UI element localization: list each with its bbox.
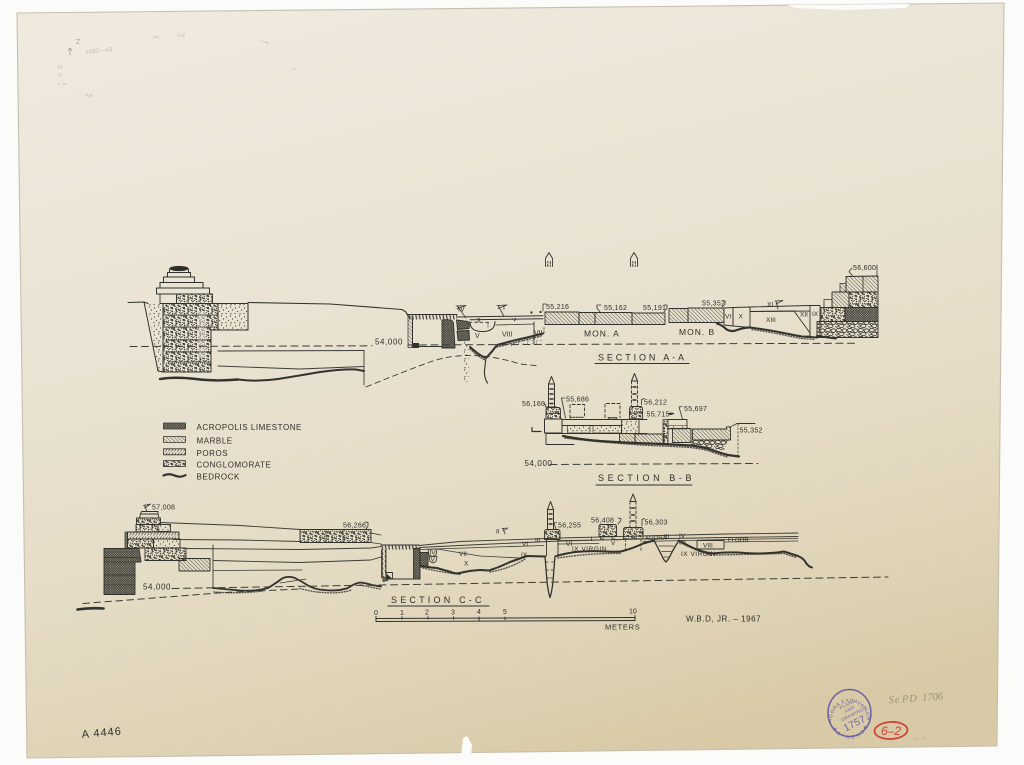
svg-text:5: 5 [503,609,507,616]
svg-text:MARBLE: MARBLE [197,437,233,446]
svg-text:55,216: 55,216 [546,304,569,311]
svg-text:55,715: 55,715 [647,412,670,419]
svg-text:II: II [496,529,500,536]
svg-text:I: I [591,536,593,543]
svg-text:56,303: 56,303 [645,520,668,527]
svg-text:X: X [464,561,469,568]
svg-text:57,008: 57,008 [152,505,175,512]
svg-text:≈ »•: ≈ »• [58,82,67,88]
svg-text:BEDROCK: BEDROCK [197,473,241,482]
svg-text:MON. A: MON. A [584,329,620,339]
svg-text:55,686: 55,686 [566,397,589,404]
svg-text:Z: Z [76,39,81,46]
svg-text:56,255: 56,255 [558,523,581,530]
svg-text:VIII: VIII [502,332,513,339]
svg-text:FLOOR: FLOOR [728,538,749,544]
svg-text:III: III [664,534,670,541]
svg-text:W.B.D, JR. – 1967: W.B.D, JR. – 1967 [686,615,761,624]
svg-text:1: 1 [400,610,404,617]
svg-text:2: 2 [425,610,429,617]
svg-text:56,266: 56,266 [343,523,366,530]
svg-text:56,212: 56,212 [644,400,667,407]
svg-text:IV: IV [430,550,437,557]
svg-text:54,000: 54,000 [525,459,553,468]
svg-text:54,000: 54,000 [375,338,403,347]
svg-text:SECTION B-B: SECTION B-B [598,473,695,483]
svg-text:JL: JL [476,319,483,325]
svg-text:V: V [611,540,616,547]
svg-text:10: 10 [629,609,637,616]
svg-text:ACROPOLIS LIMESTONE: ACROPOLIS LIMESTONE [197,423,302,432]
svg-text:1•2: 1•2 [177,33,185,39]
svg-text:VI: VI [57,65,63,71]
svg-text:0: 0 [374,610,378,617]
svg-text:3: 3 [451,609,455,616]
svg-text:XII: XII [800,312,808,319]
svg-text:POROS: POROS [197,449,229,458]
svg-text:54,000: 54,000 [143,583,171,592]
svg-text:METERS: METERS [605,623,640,632]
svg-text:4: 4 [477,609,481,616]
svg-text:56,600: 56,600 [853,265,876,272]
svg-text:V: V [431,557,436,564]
svg-text:55,352: 55,352 [740,428,763,435]
svg-text:56,408: 56,408 [591,518,614,525]
svg-text:SECTION A-A: SECTION A-A [598,353,687,363]
svg-text:55,191: 55,191 [643,305,666,312]
svg-text:55,352: 55,352 [702,301,725,308]
svg-text:IX VIRGIN: IX VIRGIN [572,546,607,553]
svg-text:V: V [58,73,62,79]
svg-text:SECTION C-C: SECTION C-C [391,595,485,605]
svg-text:CONGLOMORATE: CONGLOMORATE [197,461,272,470]
svg-text:VI: VI [522,541,528,548]
svg-text:X: X [739,314,744,321]
svg-text:↗w: ↗w [84,93,93,99]
svg-text:III: III [535,538,541,545]
svg-text:6–2: 6–2 [881,724,901,738]
svg-text:••c: ••c [153,34,160,41]
svg-text:55,697: 55,697 [684,406,707,413]
svg-text:XI: XI [767,302,773,309]
svg-text:MON. B: MON. B [679,327,715,337]
svg-text:VII: VII [459,551,467,558]
svg-text:VIII: VIII [703,543,713,550]
svg-text:IX: IX [812,311,819,318]
svg-text:56,160: 56,160 [522,401,545,408]
svg-text:VI: VI [725,314,731,321]
svg-text:55,162: 55,162 [604,305,627,312]
svg-text:V: V [475,333,480,340]
svg-text:XIII: XIII [766,317,776,324]
svg-text:IX: IX [521,552,528,559]
